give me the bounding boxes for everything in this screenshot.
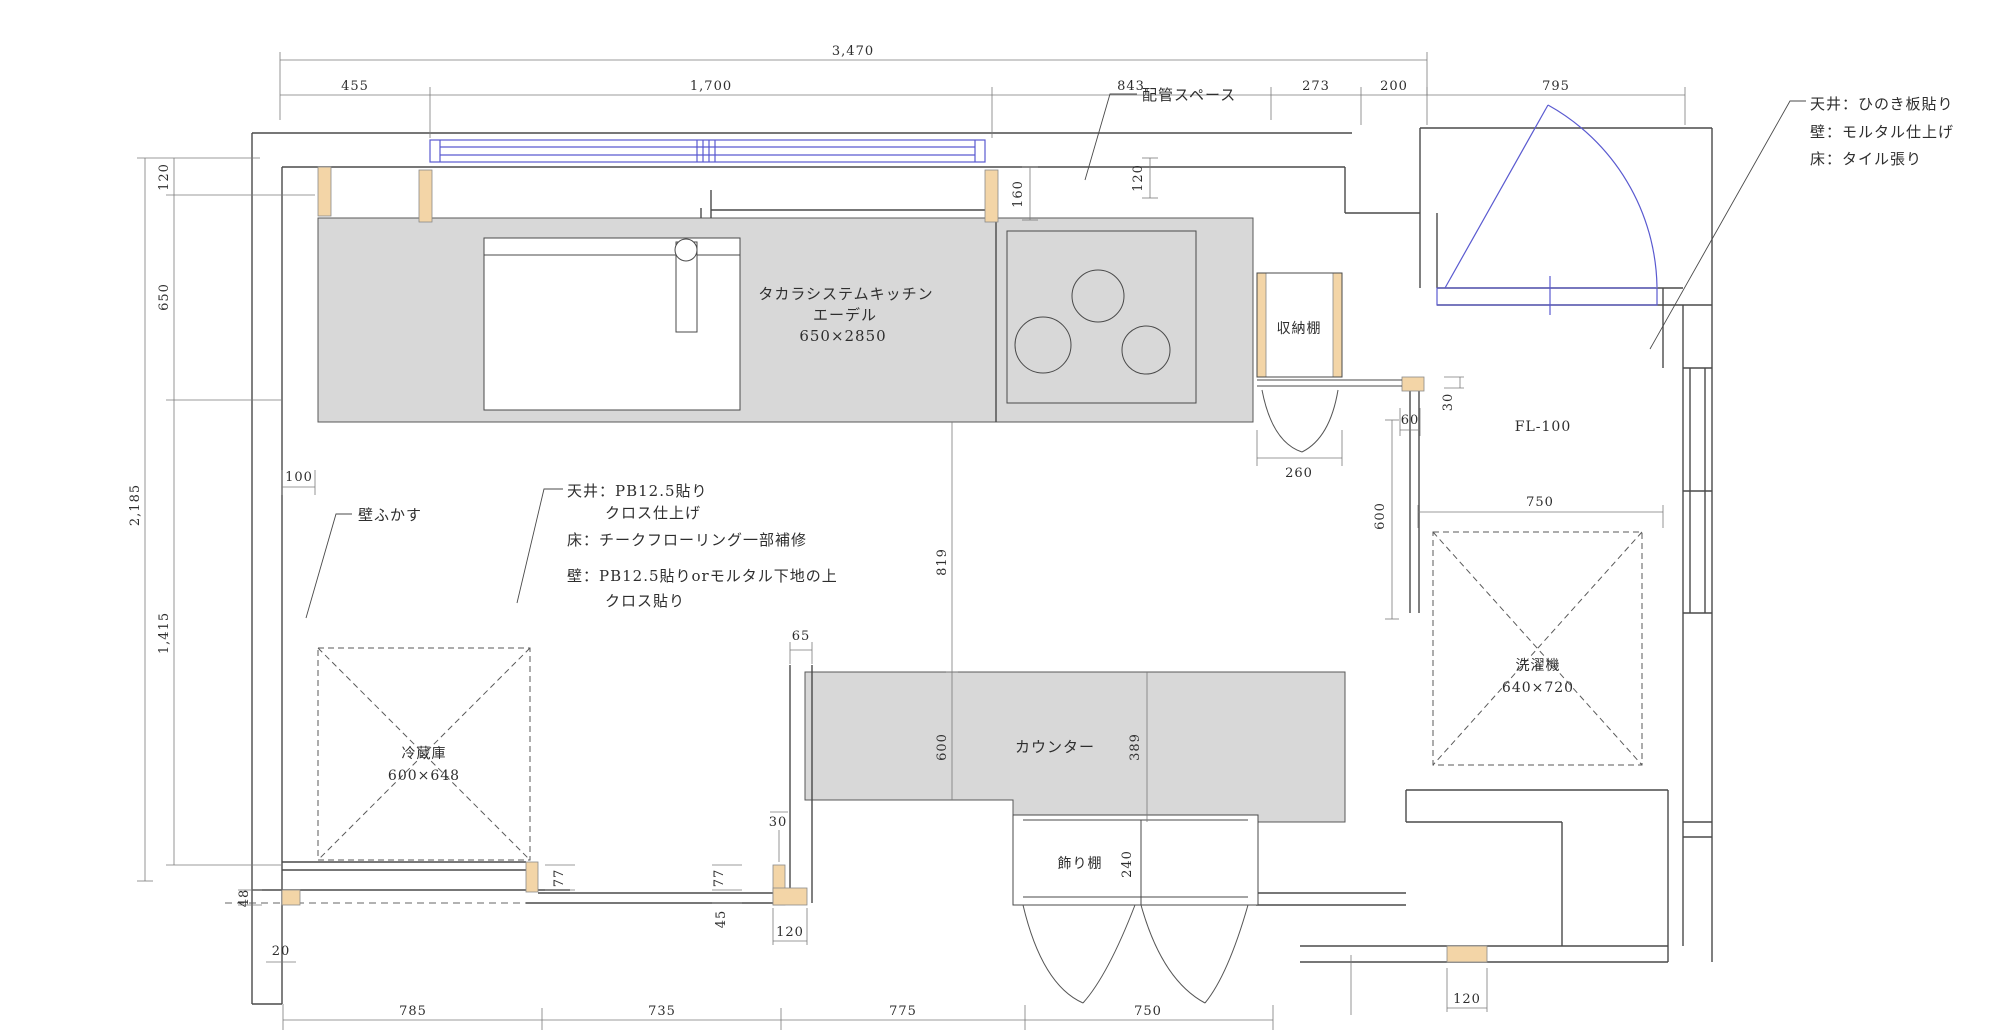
kitchen-counter-fill	[318, 218, 1253, 422]
room-spec-1: 天井：PB12.5貼り	[567, 482, 708, 500]
dim-100: 100	[285, 470, 313, 485]
dim-bottom-735: 735	[648, 1004, 676, 1019]
dim-260: 260	[1285, 466, 1313, 481]
dim-60: 60	[1401, 413, 1420, 428]
floor-plan-canvas: 3,470 455 1,700 843 273 200 795 120 650 …	[0, 0, 2000, 1033]
fridge-label-1: 冷蔵庫	[402, 745, 447, 762]
dim-750-niche: 750	[1526, 495, 1554, 510]
entrance-door	[1437, 105, 1657, 315]
room-spec-2: クロス仕上げ	[605, 504, 701, 522]
wall-fukasu-label: 壁ふかす	[358, 506, 422, 524]
dim-left-2185: 2,185	[128, 484, 143, 526]
dimension-lines	[137, 52, 1685, 1030]
tile-spec-leader	[1650, 101, 1806, 349]
kitchen-label-1: タカラシステムキッチン	[758, 285, 933, 303]
tile-spec-3: 床：タイル張り	[1810, 150, 1922, 168]
dim-30-counter: 30	[769, 815, 788, 830]
kitchen-label-3: 650×2850	[799, 327, 886, 345]
dim-bottom-775: 775	[889, 1004, 917, 1019]
dim-120-counter: 120	[776, 925, 804, 940]
dim-left-20: 20	[272, 944, 291, 959]
fl-100-label: FL-100	[1515, 419, 1571, 435]
dim-77-left: 77	[552, 869, 567, 888]
dim-389: 389	[1128, 733, 1143, 761]
storage-shelf-label: 収納棚	[1277, 321, 1322, 337]
fridge-label-2: 600×648	[388, 768, 460, 784]
room-spec-4: 壁：PB12.5貼りorモルタル下地の上	[567, 567, 838, 585]
display-shelf-label: 飾り棚	[1058, 856, 1103, 872]
pipe-space-label: 配管スペース	[1142, 86, 1236, 104]
storage-door-swing	[1262, 390, 1338, 452]
dim-77-right: 77	[712, 869, 727, 888]
room-spec-3: 床：チークフローリング一部補修	[567, 531, 807, 549]
dim-120-washer: 120	[1453, 992, 1481, 1007]
dim-top-1700: 1,700	[690, 79, 732, 94]
dim-top-843: 843	[1117, 79, 1145, 94]
dimension-texts: 3,470 455 1,700 843 273 200 795 120 650 …	[128, 44, 1570, 1019]
dim-160: 160	[1011, 180, 1026, 208]
dim-120-pipe: 120	[1131, 164, 1146, 192]
dim-819: 819	[935, 548, 950, 576]
washer-label-1: 洗濯機	[1516, 658, 1561, 674]
tile-spec-1: 天井：ひのき板貼り	[1810, 95, 1954, 113]
room-spec-leader	[517, 489, 563, 603]
floor-plan-svg: 3,470 455 1,700 843 273 200 795 120 650 …	[0, 0, 2000, 1033]
window-top	[430, 140, 985, 162]
kitchen-label-2: エーデル	[813, 306, 877, 324]
dim-30-niche: 30	[1441, 393, 1456, 412]
dim-65: 65	[792, 629, 811, 644]
dim-45: 45	[714, 910, 729, 929]
sink	[484, 238, 740, 410]
dim-top-273: 273	[1302, 79, 1330, 94]
dim-bottom-750: 750	[1134, 1004, 1162, 1019]
counter-label: カウンター	[1015, 738, 1095, 756]
display-shelf	[1013, 815, 1258, 905]
dim-600-niche: 600	[1373, 502, 1388, 530]
display-shelf-door-swings	[1023, 905, 1248, 1003]
dim-left-650: 650	[157, 283, 172, 311]
dim-bottom-785: 785	[399, 1004, 427, 1019]
dim-240: 240	[1120, 850, 1135, 878]
washer-label-2: 640×720	[1502, 680, 1574, 696]
dim-left-48: 48	[237, 889, 252, 908]
dim-top-200: 200	[1380, 79, 1408, 94]
wall-fukasu-leader	[306, 514, 352, 618]
dim-top-455: 455	[341, 79, 369, 94]
dim-left-120: 120	[157, 163, 172, 191]
dim-top-795: 795	[1542, 79, 1570, 94]
dim-600-counter: 600	[935, 733, 950, 761]
washer-outline	[1433, 532, 1642, 765]
dim-left-1415: 1,415	[157, 612, 172, 654]
tile-spec-2: 壁：モルタル仕上げ	[1810, 123, 1954, 141]
room-spec-5: クロス貼り	[605, 592, 685, 610]
dim-top-total: 3,470	[832, 44, 874, 59]
